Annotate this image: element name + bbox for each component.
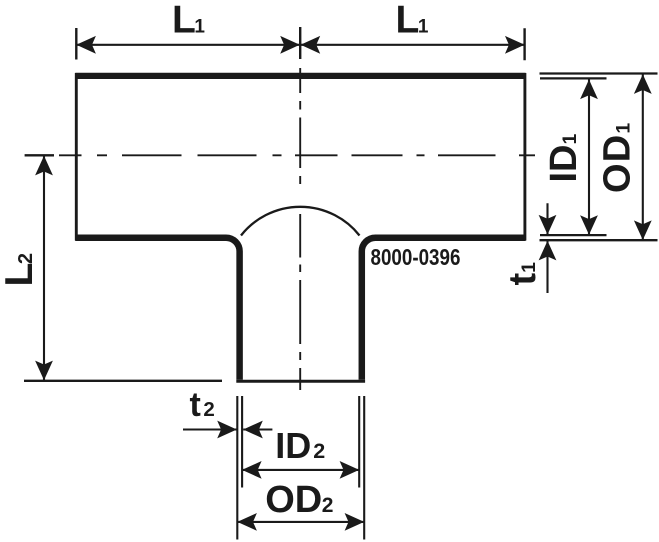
svg-text:t1: t1	[502, 262, 544, 286]
svg-text:L2: L2	[0, 253, 41, 286]
svg-text:OD2: OD2	[265, 479, 333, 521]
svg-text:8000-0396: 8000-0396	[371, 245, 461, 270]
svg-text:ID2: ID2	[275, 425, 325, 466]
svg-text:t2: t2	[190, 386, 215, 424]
svg-text:L1: L1	[172, 0, 205, 42]
svg-text:OD1: OD1	[597, 122, 639, 193]
svg-text:ID1: ID1	[543, 134, 585, 183]
svg-text:L1: L1	[396, 0, 429, 42]
